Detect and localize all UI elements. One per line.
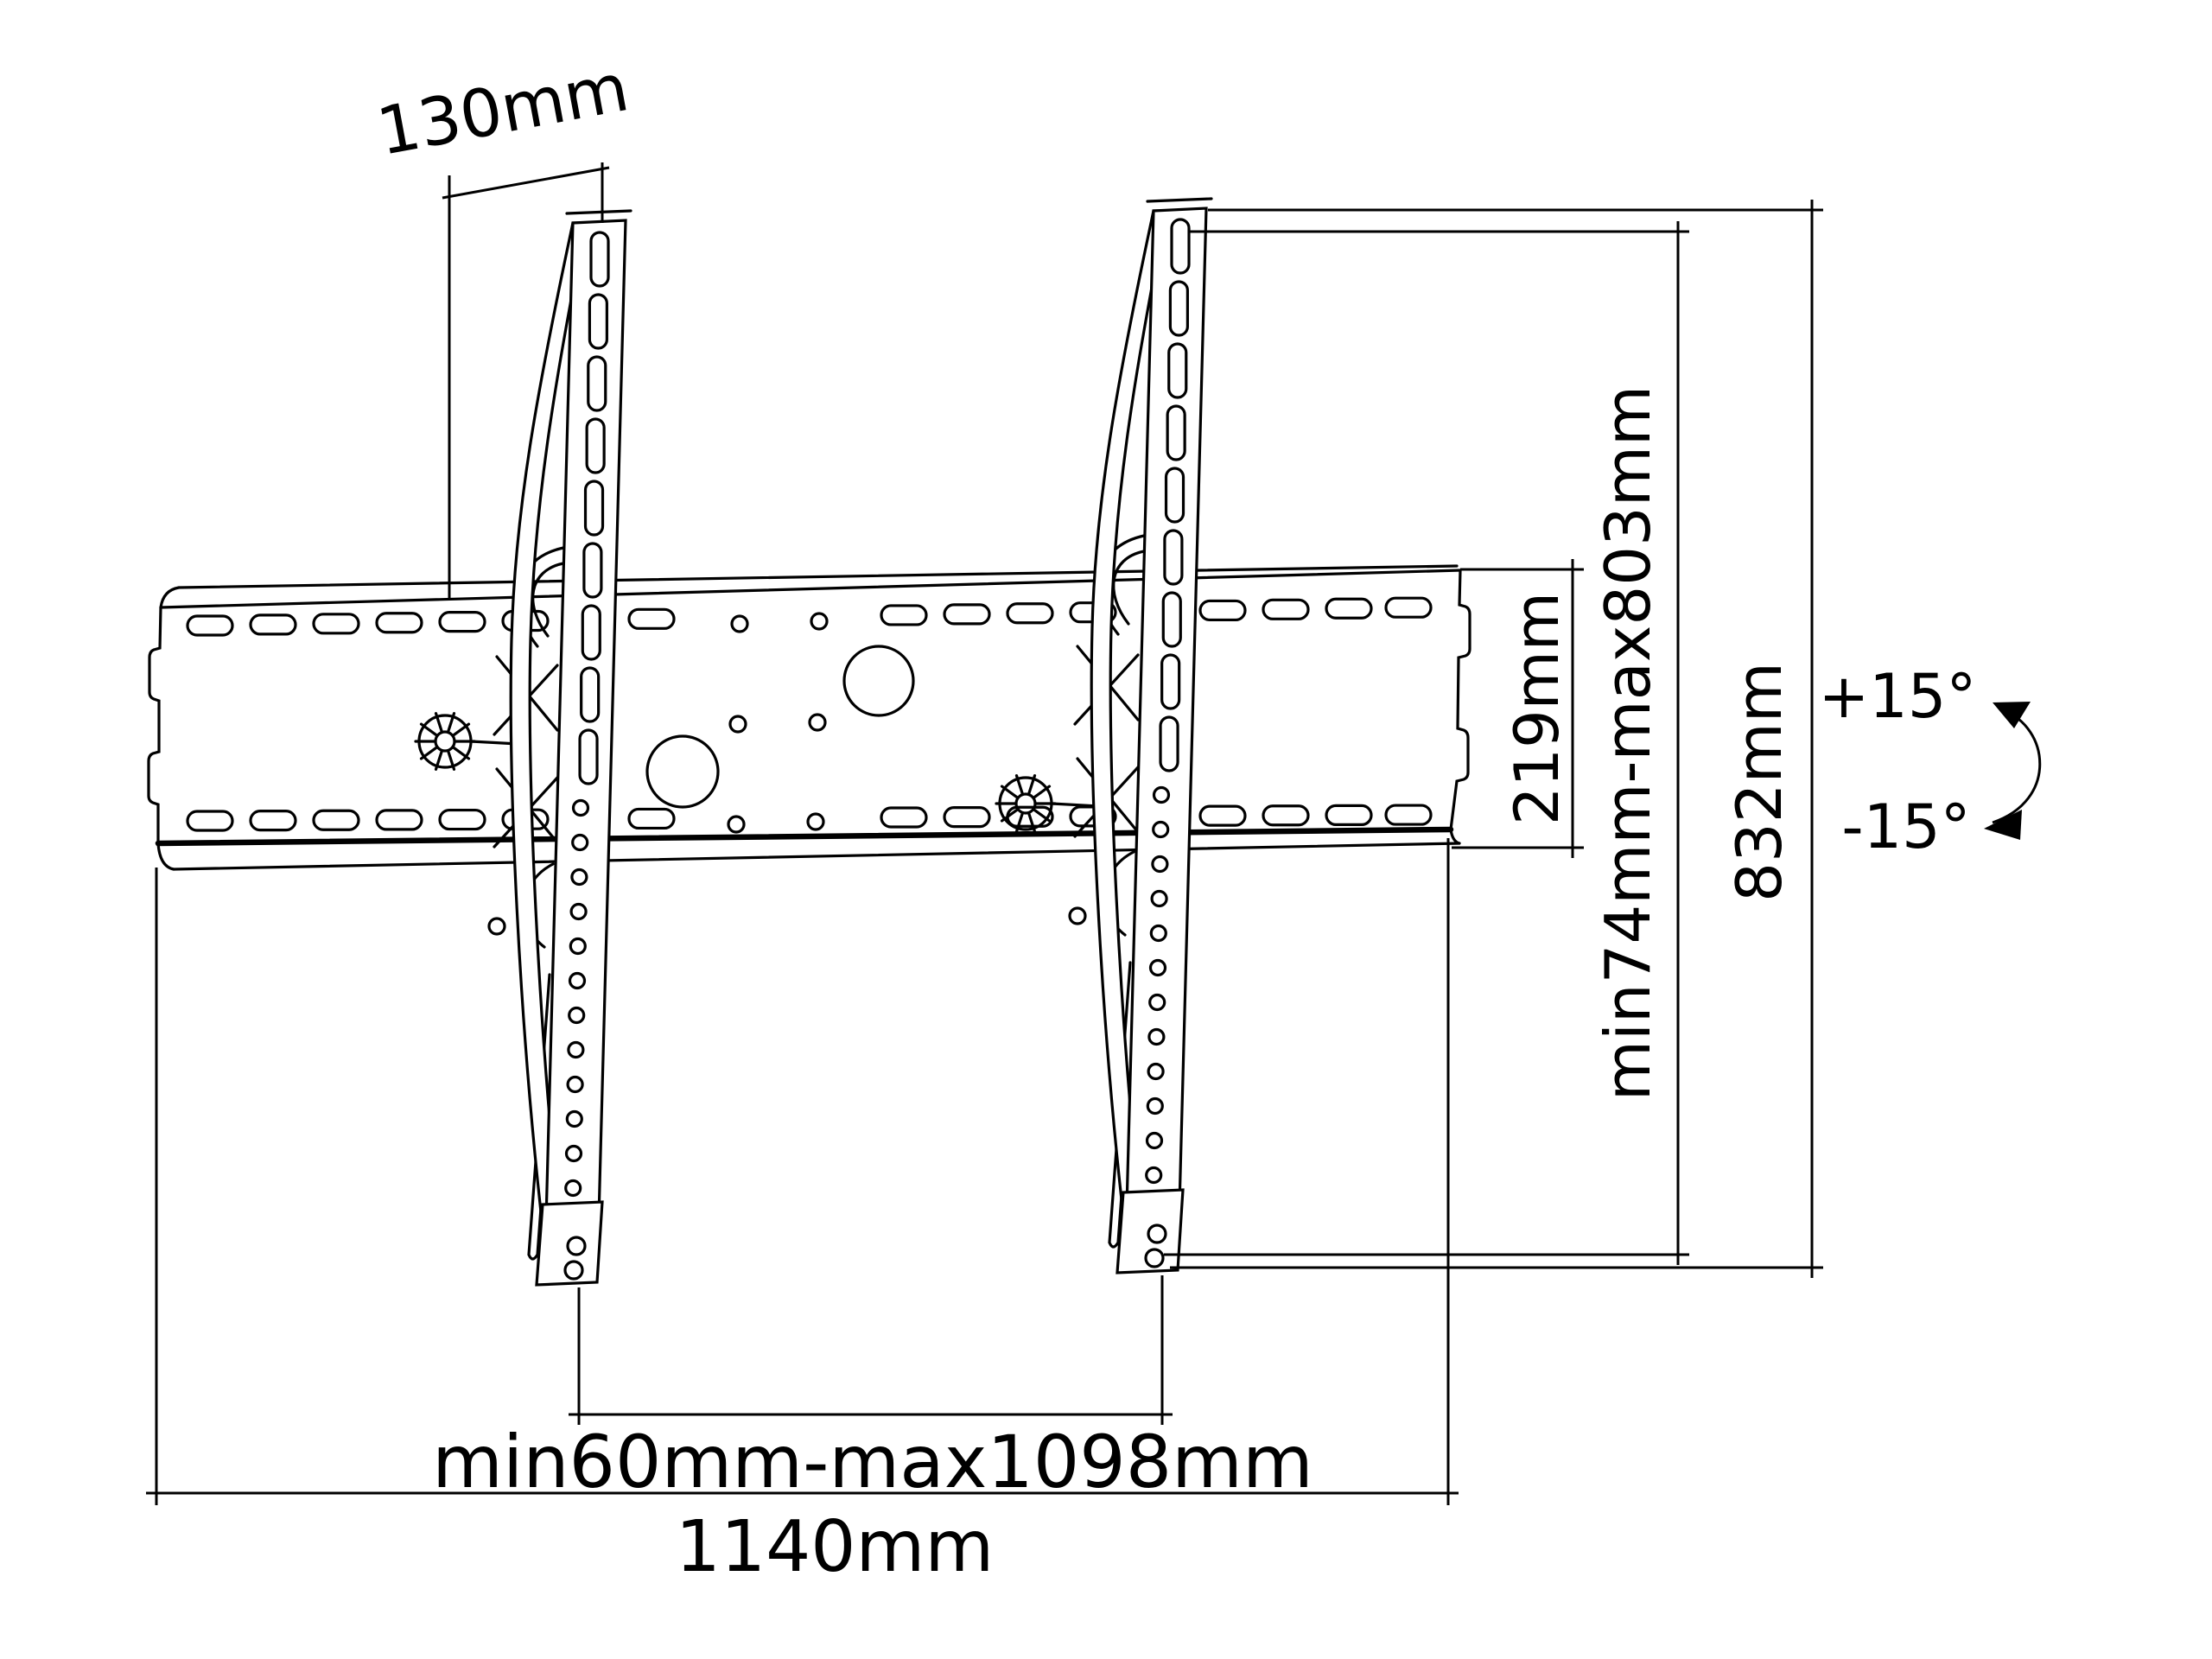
- tilt-knob-item: [1034, 810, 1050, 821]
- wall-plate-bottom-corner: [158, 843, 174, 869]
- wall-plate-top-slots-item: [377, 613, 422, 632]
- knob-shaft: [1052, 804, 1099, 806]
- screw-hole: [811, 613, 827, 629]
- wall-plate-top-slots-item: [1326, 599, 1371, 618]
- tilt-down-label: -15°: [1841, 797, 1970, 857]
- wall-plate-bottom-slots-item: [251, 811, 296, 830]
- wall-plate-bottom-slots-item: [440, 810, 485, 829]
- wall-plate-top-slots-item: [1263, 600, 1308, 619]
- wall-plate-top-slots-item: [440, 613, 485, 632]
- dim-label-vesa-vertical-range: min74mm-max803mm: [1597, 385, 1659, 1101]
- tilt-knob-item: [421, 724, 436, 735]
- tilt-knob-item: [1034, 786, 1050, 798]
- screw-hole: [730, 716, 746, 732]
- wall-plate-bottom-slots-item: [881, 808, 926, 827]
- cable-hole: [647, 736, 718, 807]
- wall-plate-top-slots-item: [881, 606, 926, 625]
- wall-plate-top-slots-item: [1200, 601, 1245, 620]
- tilt-up-label: +15°: [1819, 666, 1977, 727]
- right-bracket: [996, 199, 1211, 1273]
- wall-plate-left-edge: [149, 607, 161, 843]
- screw-hole: [810, 715, 825, 730]
- left-bracket-top-cap: [567, 211, 631, 213]
- tilt-knob-item: [1001, 786, 1017, 798]
- tilt-knob: [416, 714, 518, 770]
- dim-label-plate-height: 219mm: [1507, 592, 1567, 825]
- wall-plate-right-edge: [1451, 570, 1470, 829]
- wall-plate-bottom-slots-item: [1200, 806, 1245, 825]
- wall-plate-top-slots-item: [1386, 598, 1431, 617]
- arrowhead-down-icon: [1984, 810, 2022, 840]
- tilt-knob-item: [454, 747, 469, 759]
- wall-plate: [149, 566, 1470, 869]
- dimension-line: [442, 168, 609, 198]
- page: 130mm 219mm min74mm-max803mm 832mm +15° …: [0, 0, 2212, 1659]
- wall-plate-bottom-slots-item: [314, 810, 359, 829]
- wall-plate-top-slots-item: [251, 615, 296, 634]
- bolt: [1070, 908, 1085, 924]
- wall-plate-bottom-slots-item: [944, 808, 989, 827]
- dim-label-total-width: 1140mm: [676, 1512, 994, 1583]
- tilt-arc-icon: [1984, 702, 2040, 840]
- upper-hook-inner: [1114, 551, 1144, 624]
- tilt-arc: [1993, 710, 2040, 823]
- wall-plate-bottom-slots-item: [188, 811, 232, 830]
- screw-hole: [728, 817, 744, 832]
- screw-hole: [732, 616, 747, 632]
- wall-plate-bottom-slots-item: [377, 810, 422, 829]
- left-bracket: [416, 211, 631, 1285]
- wall-plate-bottom-slots-item: [1263, 806, 1308, 825]
- tilt-knob-item: [421, 747, 436, 759]
- wall-plate-bottom-lip: [174, 843, 1459, 869]
- wall-plate-top-corner: [161, 588, 179, 607]
- bolt: [489, 918, 505, 934]
- wall-plate-bottom-slots-item: [1326, 805, 1371, 824]
- dim-vesa-horizontal-range: [569, 1275, 1173, 1425]
- dim-total-width: [146, 838, 1459, 1505]
- wall-plate-bottom-slots-item: [629, 809, 674, 828]
- wall-plate-top-slots-item: [188, 616, 232, 635]
- wall-plate-bottom-right-corner: [1451, 829, 1459, 843]
- screw-hole: [808, 814, 823, 829]
- cable-hole: [844, 646, 913, 715]
- wall-plate-bottom-slots-item: [1386, 805, 1431, 824]
- dim-label-total-height: 832mm: [1728, 662, 1790, 902]
- wall-plate-top-slots-item: [1007, 604, 1052, 623]
- dim-label-vesa-horizontal-range: min60mm-max1098mm: [432, 1426, 1313, 1498]
- wall-plate-top-slots-item: [629, 609, 674, 628]
- wall-plate-top-slots-item: [944, 605, 989, 624]
- wall-plate-top-slots: [188, 598, 1431, 635]
- wall-plate-top-slots-item: [314, 614, 359, 633]
- wall-plate-center-holes: [647, 613, 913, 832]
- right-bracket-top-cap: [1147, 199, 1211, 201]
- wall-plate-bottom-edge: [158, 829, 1451, 843]
- tilt-knob-item: [454, 724, 469, 735]
